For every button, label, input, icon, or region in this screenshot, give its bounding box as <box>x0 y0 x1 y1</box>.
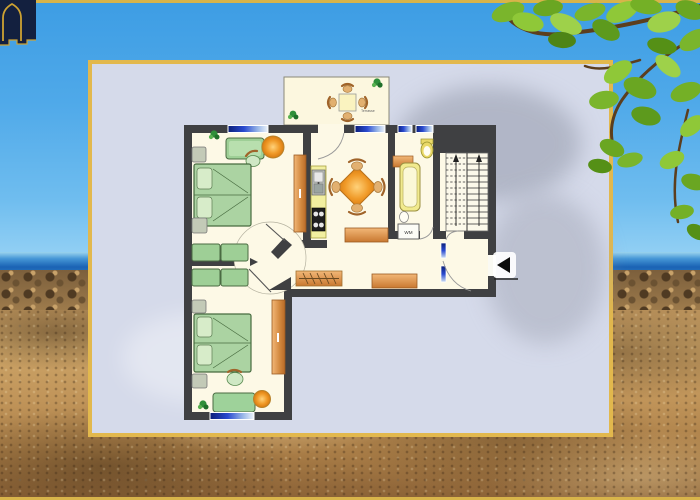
double-bed <box>194 314 251 372</box>
nightstand <box>192 147 206 162</box>
nightstand <box>192 218 207 233</box>
sideboard <box>345 228 388 242</box>
coat-rack <box>296 271 342 286</box>
wardrobe <box>294 155 306 232</box>
screenshot-root: Terrasse <box>0 0 700 500</box>
round-table <box>262 136 284 158</box>
window <box>228 126 268 133</box>
nightstand <box>192 374 207 388</box>
chair <box>227 370 243 386</box>
double-bed <box>194 164 251 226</box>
leaves <box>490 0 700 244</box>
logo-background <box>0 0 36 45</box>
toilet <box>421 139 433 158</box>
staircase <box>446 153 488 231</box>
window <box>416 126 433 133</box>
wardrobe <box>272 300 285 374</box>
kitchen-sink <box>312 170 325 195</box>
sideboard <box>372 274 417 288</box>
daybed <box>192 244 220 261</box>
bath-sink <box>400 212 409 223</box>
terrace: Terrasse <box>284 77 389 125</box>
washing-machine: WM <box>398 224 419 239</box>
window <box>398 126 412 133</box>
kitchen <box>311 166 326 238</box>
bathtub <box>400 163 420 211</box>
window <box>210 413 254 420</box>
branches <box>505 6 700 222</box>
tree-foliage <box>490 0 700 245</box>
stove <box>312 208 325 231</box>
terrace-door-opening <box>318 124 344 134</box>
hotel-logo-badge <box>0 0 42 50</box>
terrace-table <box>339 94 356 111</box>
door-leaf <box>441 243 446 258</box>
window <box>355 126 385 133</box>
daybed <box>221 269 248 286</box>
table <box>213 393 255 412</box>
entrance <box>493 252 518 279</box>
daybed <box>192 269 220 286</box>
washing-machine-label: WM <box>404 230 412 235</box>
round-table <box>254 391 271 408</box>
nightstand <box>192 300 206 313</box>
terrace-label: Terrasse <box>361 109 375 113</box>
daybed <box>221 244 248 261</box>
